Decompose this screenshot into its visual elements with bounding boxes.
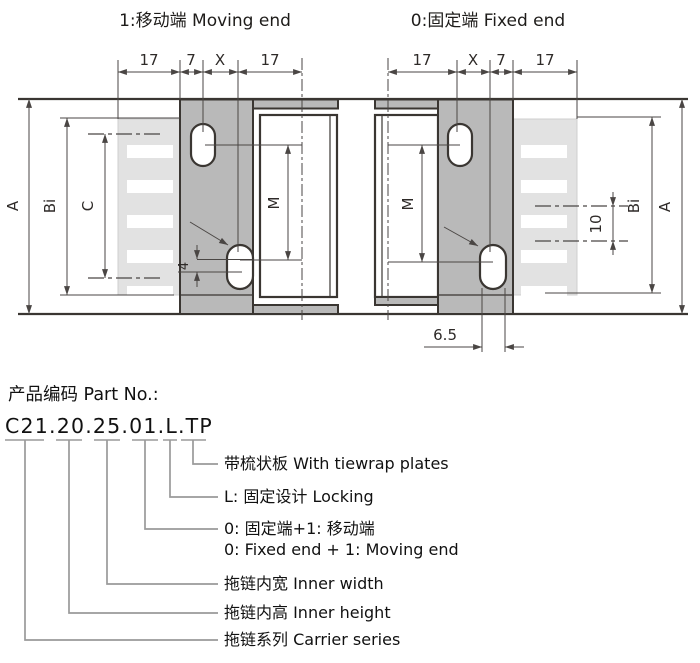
dim-17-left-a: 17 — [139, 51, 158, 69]
carrier-bracket-drawing: 1:移动端 Moving end 0:固定端 Fixed end — [0, 0, 700, 663]
fixed-end-title: 0:固定端 Fixed end — [411, 11, 565, 31]
dim-7-left: 7 — [186, 51, 196, 69]
part-number-code: C21.20.25.01.L.TP — [5, 414, 213, 438]
breakdown-locking: L: 固定设计 Locking — [224, 487, 374, 506]
breakdown-end-type-en: 0: Fixed end + 1: Moving end — [224, 540, 459, 559]
dim-x-left: X — [215, 51, 225, 69]
part-code-tree-lines — [25, 440, 218, 640]
dim-M-left: M — [265, 197, 283, 210]
dim-17-right-a: 17 — [412, 51, 431, 69]
tiewrap-comb-plate-left — [118, 119, 180, 299]
dim-7-right: 7 — [496, 51, 506, 69]
dim-17-left-b: 17 — [260, 51, 279, 69]
breakdown-carrier-series: 拖链系列 Carrier series — [224, 630, 400, 649]
dim-M-right: M — [399, 198, 417, 211]
dim-C-left: C — [79, 201, 97, 211]
dim-4-left: 4 — [177, 262, 192, 270]
part-number-heading: 产品编码 Part No.: — [8, 385, 159, 405]
breakdown-end-type-cn: 0: 固定端+1: 移动端 — [224, 519, 375, 538]
dim-10-right: 10 — [587, 214, 605, 233]
dim-A-right: A — [656, 201, 674, 212]
slot-hole-bottom-left — [227, 245, 253, 289]
datasheet-page: 1:移动端 Moving end 0:固定端 Fixed end — [0, 0, 700, 663]
moving-end-view — [118, 58, 338, 320]
breakdown-inner-width: 拖链内宽 Inner width — [224, 574, 384, 593]
breakdown-tiewrap-plates: 带梳状板 With tiewrap plates — [224, 454, 449, 473]
dim-A-left: A — [4, 200, 22, 211]
dim-Bi-left: Bi — [41, 199, 59, 213]
dim-6-5-right: 6.5 — [433, 326, 457, 344]
fixed-end-view — [375, 58, 577, 320]
part-code-breakdown-labels: 带梳状板 With tiewrap plates L: 固定设计 Locking… — [224, 454, 459, 649]
dim-Bi-right: Bi — [625, 199, 643, 213]
tiewrap-comb-plate-right — [513, 119, 577, 299]
breakdown-inner-height: 拖链内高 Inner height — [224, 603, 391, 622]
dim-x-right: X — [468, 51, 478, 69]
dim-17-right-b: 17 — [535, 51, 554, 69]
part-number-section: 产品编码 Part No.: C21.20.25.01.L.TP 带梳状板 Wi… — [5, 385, 459, 649]
moving-end-title: 1:移动端 Moving end — [119, 11, 291, 31]
slot-hole-bottom-right — [480, 245, 506, 289]
